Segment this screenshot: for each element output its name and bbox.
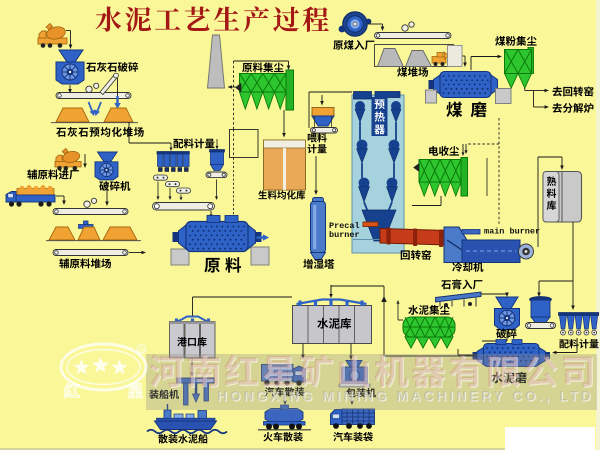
svg-text:burner: burner — [329, 230, 360, 240]
svg-text:R: R — [139, 347, 144, 354]
svg-text:main burner: main burner — [484, 227, 540, 237]
svg-text:HONGXING MINING MACHINERY CO.,: HONGXING MINING MACHINERY CO., LTD — [217, 389, 594, 404]
